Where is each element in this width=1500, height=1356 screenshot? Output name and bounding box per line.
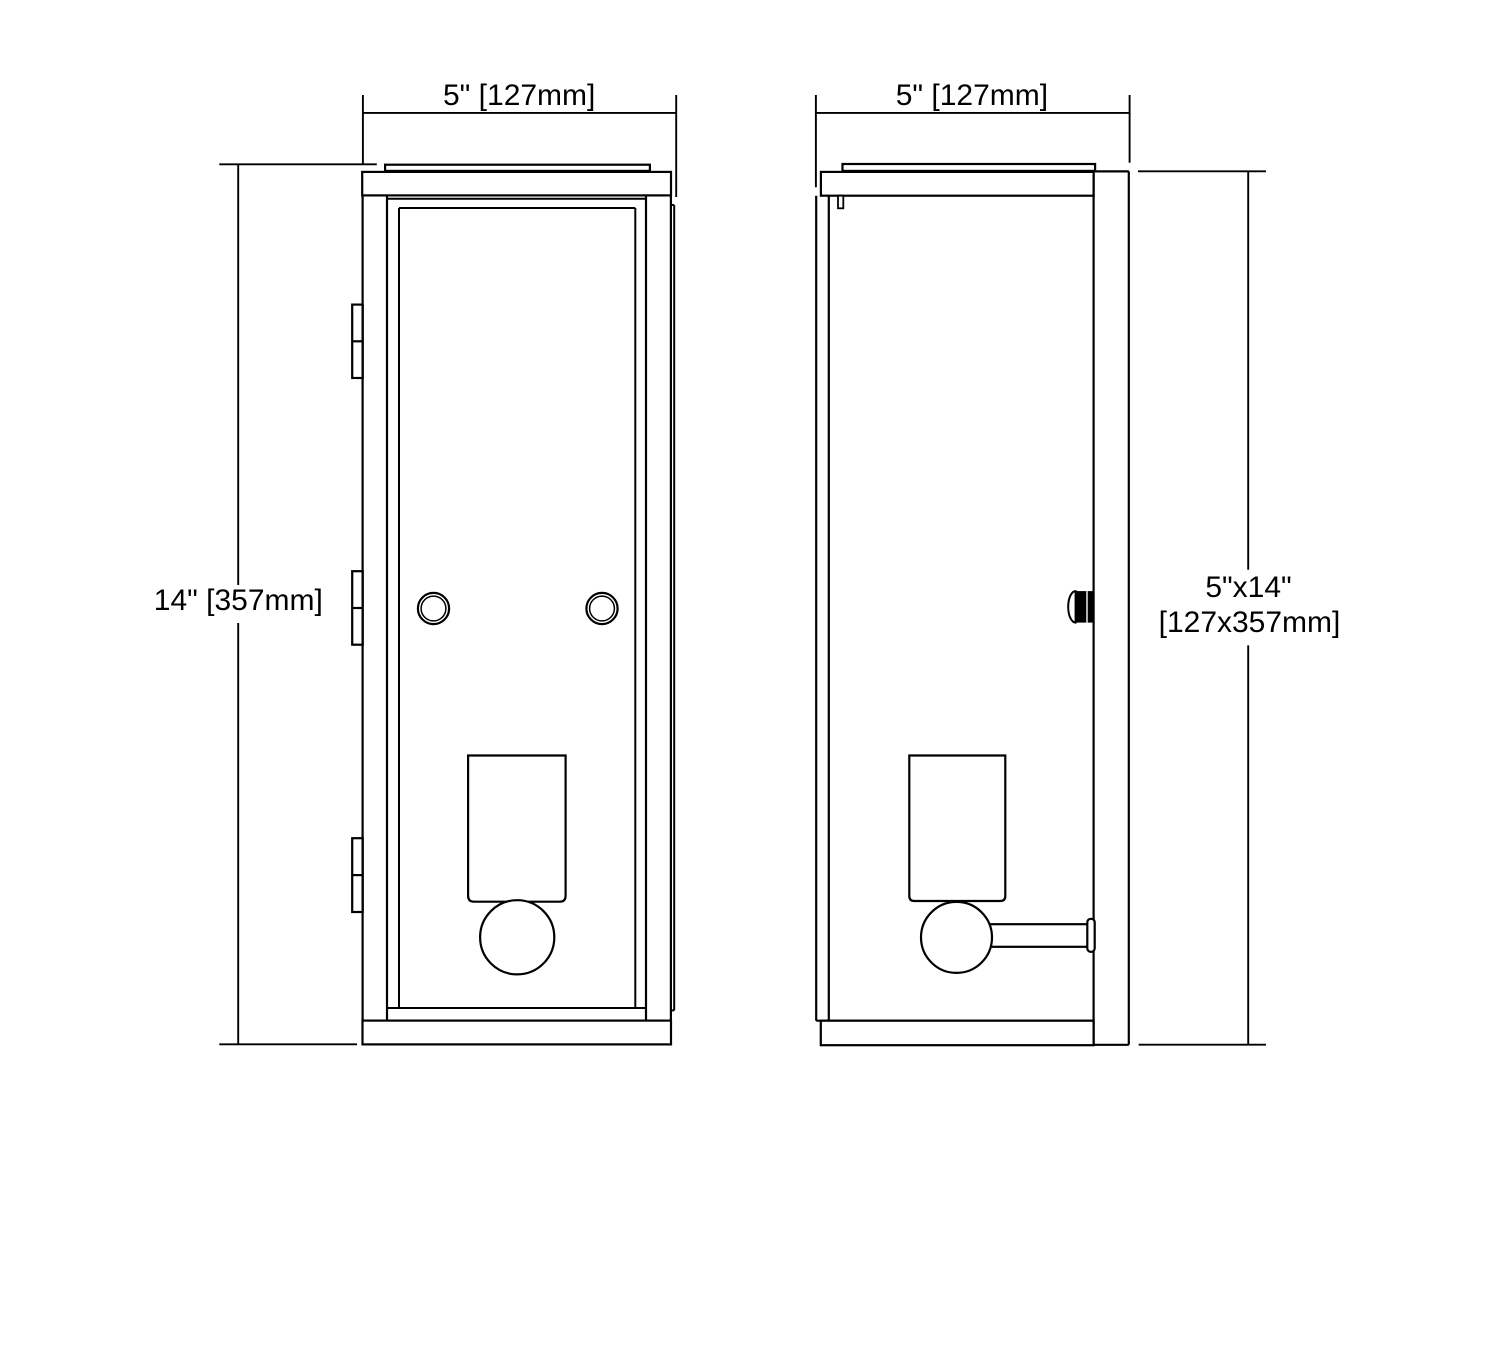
svg-text:[127x357mm]: [127x357mm] [1159, 606, 1341, 639]
svg-text:14" [357mm]: 14" [357mm] [154, 584, 323, 617]
svg-text:5" [127mm]: 5" [127mm] [896, 79, 1048, 112]
svg-text:5"x14": 5"x14" [1205, 571, 1291, 604]
svg-text:5" [127mm]: 5" [127mm] [443, 79, 595, 112]
